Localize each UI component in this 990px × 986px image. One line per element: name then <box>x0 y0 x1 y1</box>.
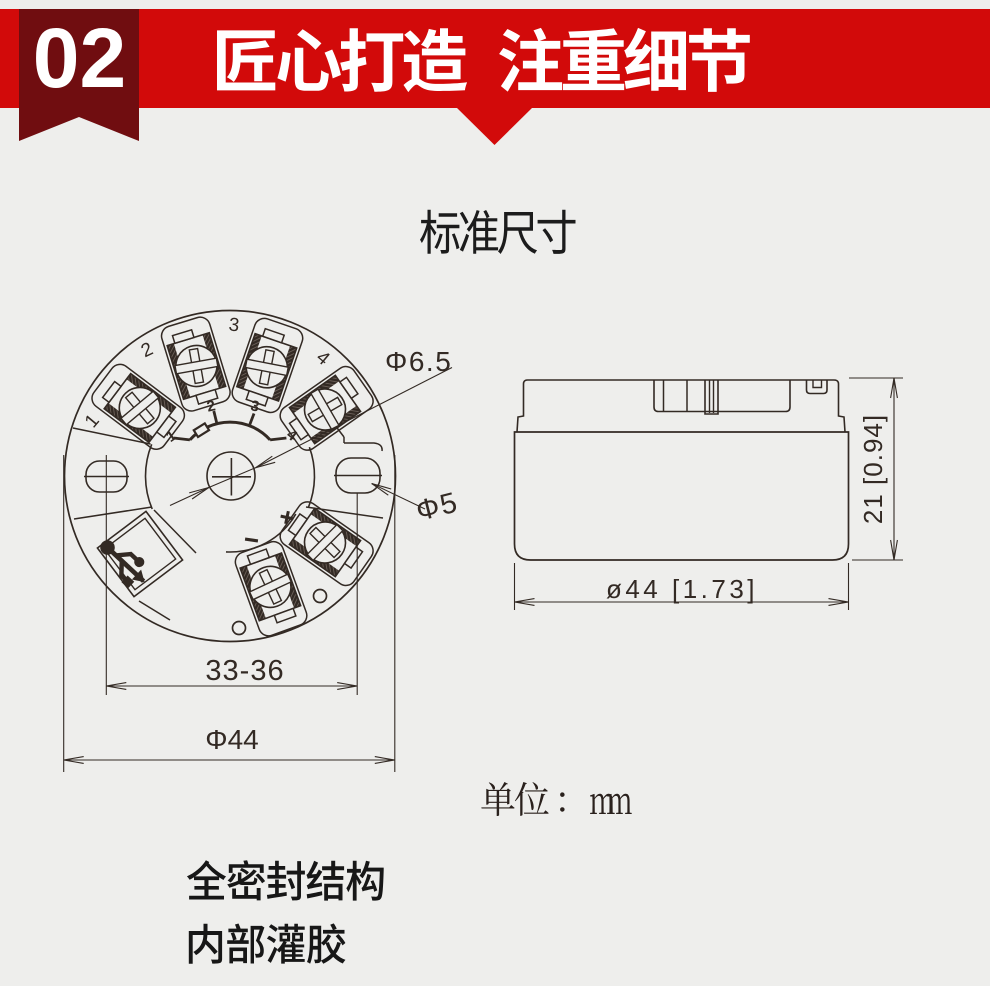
svg-text:33-36: 33-36 <box>205 655 284 687</box>
svg-text:4: 4 <box>312 347 334 370</box>
svg-text:2: 2 <box>138 339 156 363</box>
svg-text:2: 2 <box>205 397 217 415</box>
svg-text:21 [0.94]: 21 [0.94] <box>858 414 888 524</box>
svg-text:3: 3 <box>228 315 241 337</box>
svg-text:ø44 [1.73]: ø44 [1.73] <box>606 574 758 604</box>
svg-text:Φ44: Φ44 <box>205 724 258 755</box>
svg-text:Φ6.5: Φ6.5 <box>385 346 452 377</box>
svg-text:02: 02 <box>33 11 126 105</box>
svg-text:Φ5: Φ5 <box>413 487 462 528</box>
svg-text:1: 1 <box>81 411 104 433</box>
